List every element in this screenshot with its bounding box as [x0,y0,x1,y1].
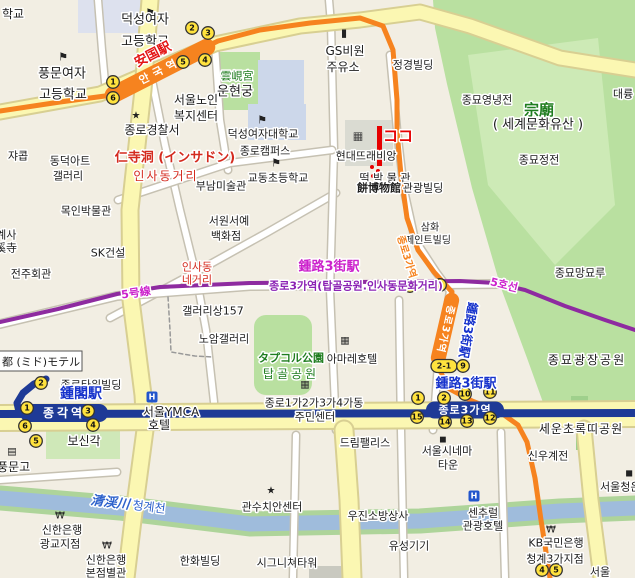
map-label: 餅博物館 [356,181,401,195]
map-label: 네거리 [182,274,212,287]
map-label: 정경빌딩 [393,59,433,72]
exit-number: 1 [24,404,30,413]
hotel-h-icon: H [469,491,480,502]
exit-number: 14 [439,418,451,427]
exit-number: 1 [110,78,116,87]
map-label: 갤러리 [53,170,83,183]
map-label: 종로경찰서 [124,123,179,137]
exit-number: 2 [38,379,44,388]
map-label: 鍾路3街駅 [435,376,497,392]
subway-exit-1: 1 [412,392,425,405]
subway-exit-2: 2 [438,392,451,405]
map-label: 센추럴 [468,507,498,520]
jonggak-station-band-label: 종각역 [43,405,85,420]
bank-won-icon: ₩ [546,525,556,536]
map-label: 종로3가역(탑골공원.인사동문화거리) [269,279,443,293]
map-label: 종묘영녕전 [462,94,513,107]
subway-exit-3: 3 [82,405,95,418]
exit-number: 15 [411,413,423,422]
exit-number: 4 [90,421,96,430]
exit-pill-number: 2-1 [437,362,452,371]
subway-exit-12: 12 [484,412,497,425]
hotel-building-icon: ▦ [340,336,349,347]
university-icon: ⚑ [257,114,267,127]
shop-icon: ■ [625,469,633,478]
map-label: 서원서예 [209,215,249,228]
subway-exit-2: 2 [186,22,199,35]
map-label: 종로캠퍼스 [240,145,291,158]
map-label: 페인트빌딩 [405,235,451,247]
map-label: 종묘광장공원 [548,353,626,367]
map-label: 운현궁 [217,85,253,100]
school-flag-icon: ⚑ [271,157,281,170]
map-label: 서울노인 [174,93,218,107]
hotel-h-icon: H [147,392,158,403]
map-label: 교동초등학교 [248,172,309,185]
map-label: 학교 [2,7,24,21]
exit-number: 12 [484,414,495,423]
cinema-camera-icon: ◼ [439,435,446,445]
subway-exit-14: 14 [439,416,452,429]
map-label: ( 세계문화유산 ) [493,118,583,133]
exit-number: 5 [33,437,39,446]
exit-number: 6 [22,422,28,431]
subway-exit-6: 6 [19,420,32,433]
map-label: 종로1가2가3가4가동 [265,397,364,410]
map-label: GS비원 [326,44,365,58]
map-label: 대륭 [613,88,633,101]
map-label: 호텔 [148,418,170,432]
map-label: 덕성여자대학교 [228,128,299,141]
exit-number: 5 [180,58,186,67]
subway-exit-6: 6 [107,92,120,105]
map-label: タプコル公園 [258,351,324,365]
bookstore-icon: ▤ [7,447,16,458]
subway-exit-2: 2 [35,377,48,390]
map-label: 주민센터 [295,411,335,424]
map-label: 조계사 [0,229,16,242]
map-label: 서울YMCA [143,405,200,419]
map-label: 宗廟 [524,101,554,119]
bank-won-icon: ₩ [55,511,65,522]
police-icon: ★ [267,486,276,497]
subway-exit-4: 4 [536,564,549,577]
map-label: ココ [383,127,413,145]
map-label: KB국민은행 [528,537,583,550]
subway-exit-15: 15 [411,411,424,424]
map-label: 신한은행 [86,554,126,567]
exit-number: 9 [460,362,466,371]
map-label: 서울청운 [600,481,635,494]
exit-number: 4 [539,566,545,575]
map-label: 서울시네마 [422,445,473,458]
exit-pill-2-1: 2-1 [431,360,457,373]
subway-exit-3: 3 [202,27,215,40]
subway-exit-1: 1 [107,76,120,89]
map-label: 타운 [438,459,458,472]
map-label: 본점별관 [86,567,126,578]
map-label: 동덕아트 [50,155,90,168]
school-flag-icon: ⚑ [58,51,68,64]
map-canvas[interactable]: 안국역종로3가역종각역종로3가역2-1162354479121011151413… [0,0,635,578]
map-label: 쟈콥 [8,150,28,163]
map-label: 전주회관 [11,268,51,281]
subway-exit-1: 1 [21,402,34,415]
map-label: 보신각 [67,434,100,448]
subway-exit-4: 4 [87,419,100,432]
map-label: 鍾路3街駅 [298,259,360,275]
exit-number: 2 [441,394,447,403]
map-label: 관수치안센터 [242,501,303,514]
subway-exit-5: 5 [30,435,43,448]
exit-number: 5 [553,566,559,575]
subway-exit-5: 5 [550,564,563,577]
exit-number: 1 [415,394,421,403]
route-dot [370,165,374,169]
map-label: 시그니쳐타워 [257,557,318,570]
map-label: 세운초록띠공원 [539,422,623,436]
map-label: 관광호텔 [463,520,503,533]
map-label: 청계3가지점 [526,553,584,566]
map-label: 드림팰리스 [340,437,391,450]
map-label: 부남미술관 [196,180,247,193]
map-label: 광교지점 [40,538,80,551]
map-viewport: 안국역종로3가역종각역종로3가역2-1162354479121011151413… [0,0,635,578]
map-label: 영풍문고 [0,460,30,474]
map-label: 우진소방상사 [348,510,409,523]
east-lower-road [501,432,505,578]
subway-exit-13: 13 [461,415,474,428]
map-label: 仁寺洞 (インサドン) [115,150,235,166]
exit-number: 2 [189,24,195,33]
map-label: 신우계전 [528,450,568,463]
map-label: 현대뜨래비앙 [336,150,397,163]
exit-number: 13 [461,417,472,426]
map-label: 복지센터 [174,109,218,123]
exit-number: 6 [110,94,116,103]
map-label: 한화빌딩 [180,555,220,568]
map-label: 풍문여자 [38,67,86,82]
donhwamun-ro-south [344,430,352,578]
map-label: 덕성여자 [121,13,169,28]
map-label: 신한은행 [42,524,82,537]
hotel-building-icon: ▦ [300,380,309,391]
exit-number: 3 [85,407,91,416]
subway-exit-4: 4 [199,54,212,67]
exit-number: 3 [205,29,211,38]
map-label: 삼화 [421,222,439,234]
map-label: 유성기기 [389,540,429,553]
map-label: 종묘망묘루 [555,267,606,280]
map-label: 탑골공원 [263,367,319,381]
map-label: 都 (ミド)モテル [2,356,80,369]
map-label: 曹溪寺 [0,242,17,255]
map-label: 서울 [590,566,610,578]
subway-exit-5: 5 [177,56,190,69]
map-label: 갤러리상157 [182,305,243,318]
exit-number: 4 [202,56,208,65]
map-label: 관광빌딩 [403,182,443,195]
map-label: 종묘정전 [519,154,559,167]
bank-won-icon: ₩ [102,541,112,552]
map-label: 인사동거리 [133,169,198,183]
subway-exit-9: 9 [457,360,470,373]
map-label: 인사동 [182,261,212,274]
palace-buildings-block [258,60,304,110]
map-label: 고등학교 [39,88,87,103]
hotel-letter: H [471,492,478,501]
hotel-letter: H [149,393,156,402]
police-icon: ★ [132,111,141,122]
map-label: SK건설 [91,247,125,260]
map-label: 鍾閣駅 [60,385,103,402]
map-label: 목인박물관 [61,205,112,218]
gas-station-icon: ▮ [341,27,347,40]
map-label: 雲峴宮 [221,69,254,83]
map-label: 노암갤러리 [199,333,250,346]
map-label: 주유소 [326,60,359,74]
map-label: 백화점 [211,230,241,243]
map-label: 아마레호텔 [327,353,378,366]
building-icon: ▦ [353,130,363,143]
